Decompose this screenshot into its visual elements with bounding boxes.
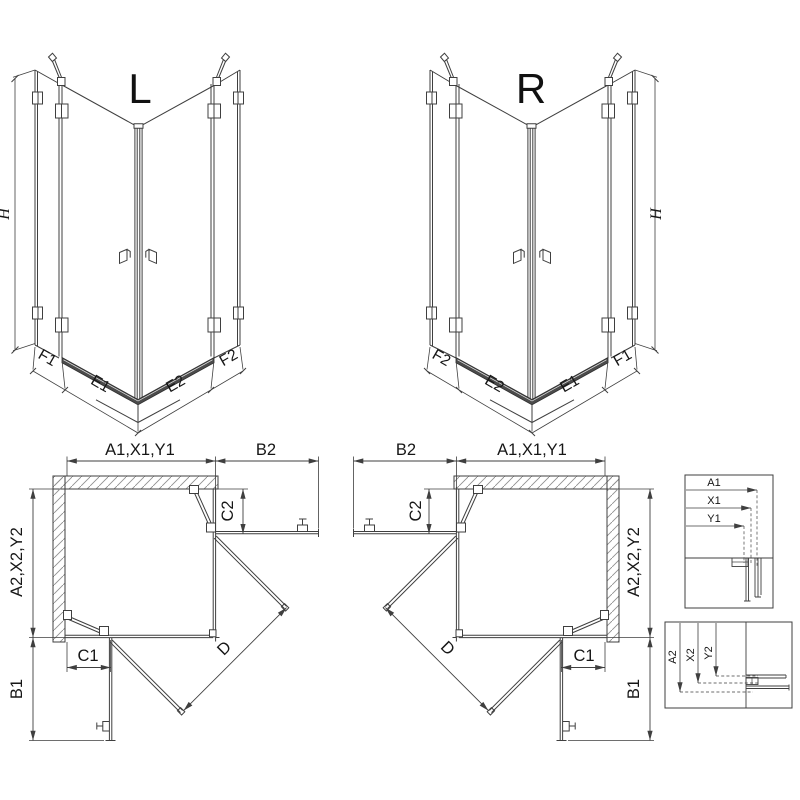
dim-f1-right-view: F1 xyxy=(611,346,635,370)
detail-box-depth-options xyxy=(665,622,792,708)
3d-view-right-version: R H F2 E2 E1 F1 xyxy=(424,53,665,436)
detail-box-width-options xyxy=(685,475,773,608)
detail-depth-label-a2: A2 xyxy=(667,650,679,663)
height-dim-label-left-view: H xyxy=(0,207,13,221)
plan-left-dim-depth: A2,X2,Y2 xyxy=(8,527,26,597)
plan-view-right-version: B2 A1,X1,Y1 C2 A2,X2,Y2 B1 C1 D xyxy=(354,441,655,741)
view-title-right: R xyxy=(516,65,546,112)
detail-width-label-a1: A1 xyxy=(707,477,720,489)
plan-right-dim-c2: C2 xyxy=(407,500,425,521)
plan-right-dim-c1: C1 xyxy=(573,647,594,665)
plan-right-dim-b1: B1 xyxy=(625,679,643,699)
plan-left-dim-width: A1,X1,Y1 xyxy=(105,441,175,459)
view-title-left: L xyxy=(128,65,151,112)
detail-width-label-y1: Y1 xyxy=(707,513,720,525)
plan-right-dim-depth: A2,X2,Y2 xyxy=(625,527,643,597)
detail-depth-label-x2: X2 xyxy=(685,648,697,661)
plan-left-dim-b1: B1 xyxy=(8,679,26,699)
plan-right-dim-d: D xyxy=(437,638,458,659)
plan-view-left-version: A1,X1,Y1 B2 C2 A2,X2,Y2 B1 C1 D xyxy=(8,441,319,741)
detail-depth-label-y2: Y2 xyxy=(703,646,715,659)
plan-right-dim-width: A1,X1,Y1 xyxy=(497,441,567,459)
plan-left-dim-c1: C1 xyxy=(77,647,98,665)
plan-left-dim-b2: B2 xyxy=(256,441,276,459)
plan-left-dim-d: D xyxy=(214,638,235,659)
dim-f1-left-view: F1 xyxy=(35,346,59,370)
technical-drawing-page: L H F1 E1 E2 F2 R H F2 E2 E1 F1 A1,X1,Y1… xyxy=(0,0,800,800)
height-dim-label-right-view: H xyxy=(648,207,665,221)
plan-right-dim-b2: B2 xyxy=(396,441,416,459)
3d-view-left-version: L H F1 E1 E2 F2 xyxy=(0,53,246,436)
plan-left-dim-c2: C2 xyxy=(219,500,237,521)
detail-width-label-x1: X1 xyxy=(707,495,720,507)
shower-enclosure-dimension-drawing: L H F1 E1 E2 F2 R H F2 E2 E1 F1 A1,X1,Y1… xyxy=(0,0,800,800)
dim-f2-left-view: F2 xyxy=(217,346,241,370)
dim-f2-right-view: F2 xyxy=(429,346,453,370)
